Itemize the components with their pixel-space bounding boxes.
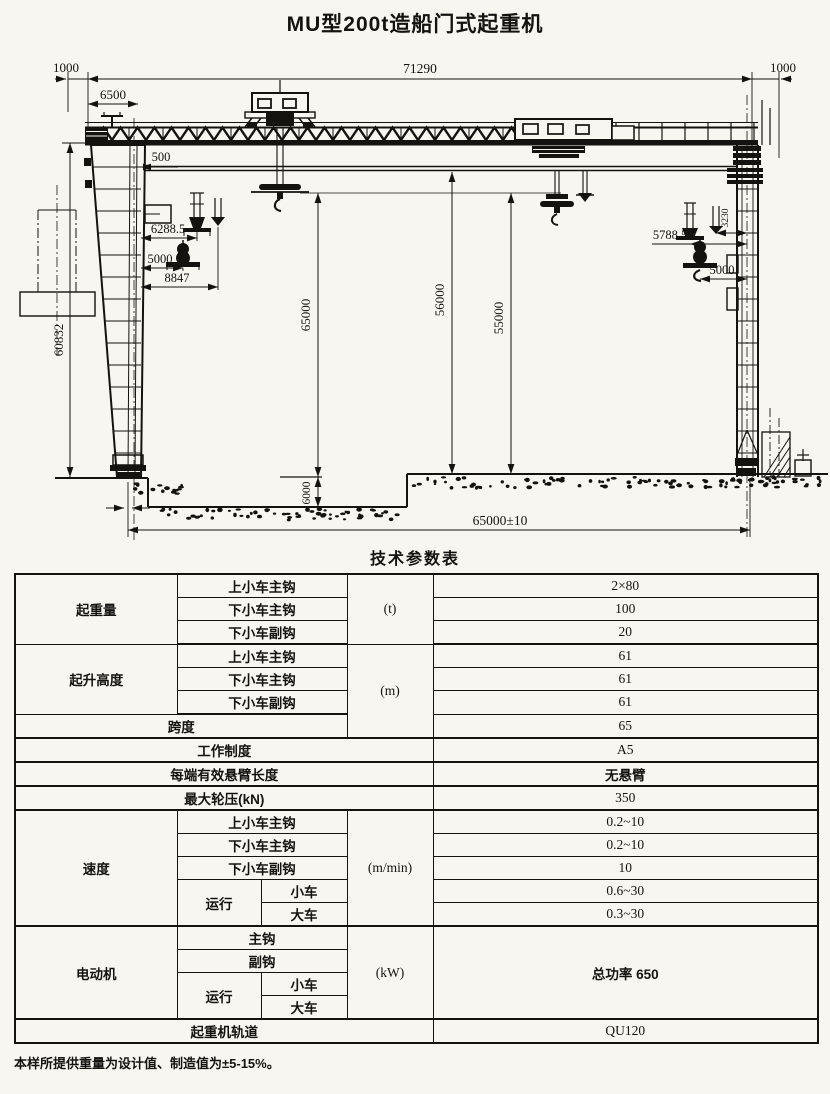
rail-label: 起重机轨道 — [15, 1019, 433, 1043]
span-label: 跨度 — [15, 714, 347, 738]
dim-height-56000: 56000 — [432, 284, 447, 317]
footnote: 本样所提供重量为设计值、制造值为±5-15%。 — [14, 1053, 830, 1072]
dim-hook-8847: 8847 — [165, 271, 190, 285]
hoist-height-unit: (m) — [347, 644, 433, 738]
capacity-unit: (t) — [347, 574, 433, 644]
dim-total-length: 71290 — [403, 61, 437, 76]
capacity-value-1: 100 — [433, 598, 818, 621]
motor-travel-label: 运行 — [177, 973, 261, 1020]
left-end-jack — [101, 112, 123, 127]
hoist-height-value-0: 61 — [433, 644, 818, 668]
speed-value-1: 0.2~10 — [433, 834, 818, 857]
speed-value-0: 0.2~10 — [433, 810, 818, 834]
wheel-load-value: 350 — [433, 786, 818, 810]
duty-value: A5 — [433, 738, 818, 762]
hoist-height-value-1: 61 — [433, 668, 818, 691]
dim-hook-3230: 3230 — [721, 208, 731, 227]
bridge-girder — [85, 100, 770, 146]
speed-sub-0: 上小车主钩 — [177, 810, 347, 834]
ground — [55, 474, 828, 521]
capacity-sub-0: 上小车主钩 — [177, 574, 347, 598]
parameters-table: 起重量 上小车主钩 (t) 2×80 下小车主钩 100 下小车副钩 20 起升… — [14, 573, 819, 1044]
girder-left-end-block — [85, 127, 108, 140]
duty-label: 工作制度 — [15, 738, 433, 762]
lower-trolley — [515, 119, 634, 196]
motor-sub-1: 副钩 — [177, 950, 347, 973]
span-value: 65 — [433, 714, 818, 738]
motor-group-label: 电动机 — [15, 926, 177, 1019]
dim-overhang-left: 1000 — [53, 60, 79, 75]
hoist-height-group-label: 起升高度 — [15, 644, 177, 714]
dim-offset-6500: 6500 — [100, 87, 126, 102]
speed-travel-label: 运行 — [177, 880, 261, 927]
right-stairs — [762, 408, 811, 477]
dim-pit-6000: 6000 — [301, 481, 313, 504]
motor-sub-0: 主钩 — [177, 926, 347, 950]
capacity-value-2: 20 — [433, 621, 818, 645]
dim-height-55000: 55000 — [491, 302, 506, 335]
wheel-load-label: 最大轮压(kN) — [15, 786, 433, 810]
capacity-group-label: 起重量 — [15, 574, 177, 644]
upper-trolley-cab — [252, 93, 308, 112]
dim-hook-5000-left: 5000 — [148, 252, 173, 266]
speed-sub-1: 下小车主钩 — [177, 834, 347, 857]
dim-height-65000: 65000 — [298, 299, 313, 332]
left-leg — [84, 118, 171, 540]
speed-group-label: 速度 — [15, 810, 177, 926]
hoist-height-sub-1: 下小车主钩 — [177, 668, 347, 691]
motor-travel-sub-0: 小车 — [261, 973, 347, 996]
capacity-sub-2: 下小车副钩 — [177, 621, 347, 645]
cantilever-value: 无悬臂 — [433, 762, 818, 786]
dim-offset-500: 500 — [152, 150, 171, 164]
dim-rail-span: 65000±10 — [473, 513, 528, 528]
speed-travel-value-1: 0.3~30 — [433, 903, 818, 927]
motor-travel-sub-1: 大车 — [261, 996, 347, 1020]
speed-unit: (m/min) — [347, 810, 433, 926]
speed-travel-sub-1: 大车 — [261, 903, 347, 927]
hoist-height-value-2: 61 — [433, 691, 818, 715]
dim-hook-5788: 5788.5 — [653, 228, 687, 242]
capacity-value-0: 2×80 — [433, 574, 818, 598]
speed-sub-2: 下小车副钩 — [177, 857, 347, 880]
dim-hook-6288: 6288.5 — [151, 222, 185, 236]
dim-height-60832: 60832 — [51, 324, 66, 357]
dim-overhang-right: 1000 — [770, 60, 796, 75]
motor-unit: (kW) — [347, 926, 433, 1019]
page-title: MU型200t造船门式起重机 — [0, 8, 830, 38]
speed-value-2: 10 — [433, 857, 818, 880]
crane-elevation-drawing: 71290 1000 1000 6500 — [0, 0, 830, 545]
speed-travel-sub-0: 小车 — [261, 880, 347, 903]
lower-runway-beam — [145, 167, 737, 171]
lower-trolley-hooks — [540, 193, 594, 225]
table-title: 技术参数表 — [0, 545, 830, 569]
hoist-height-sub-0: 上小车主钩 — [177, 644, 347, 668]
cantilever-label: 每端有效悬臂长度 — [15, 762, 433, 786]
speed-travel-value-0: 0.6~30 — [433, 880, 818, 903]
dim-hook-5000-right: 5000 — [710, 263, 735, 277]
hoist-height-sub-2: 下小车副钩 — [177, 691, 347, 715]
motor-value: 总功率 650 — [433, 926, 818, 1019]
upper-trolley-hook — [251, 184, 309, 211]
capacity-sub-1: 下小车主钩 — [177, 598, 347, 621]
rail-value: QU120 — [433, 1019, 818, 1043]
